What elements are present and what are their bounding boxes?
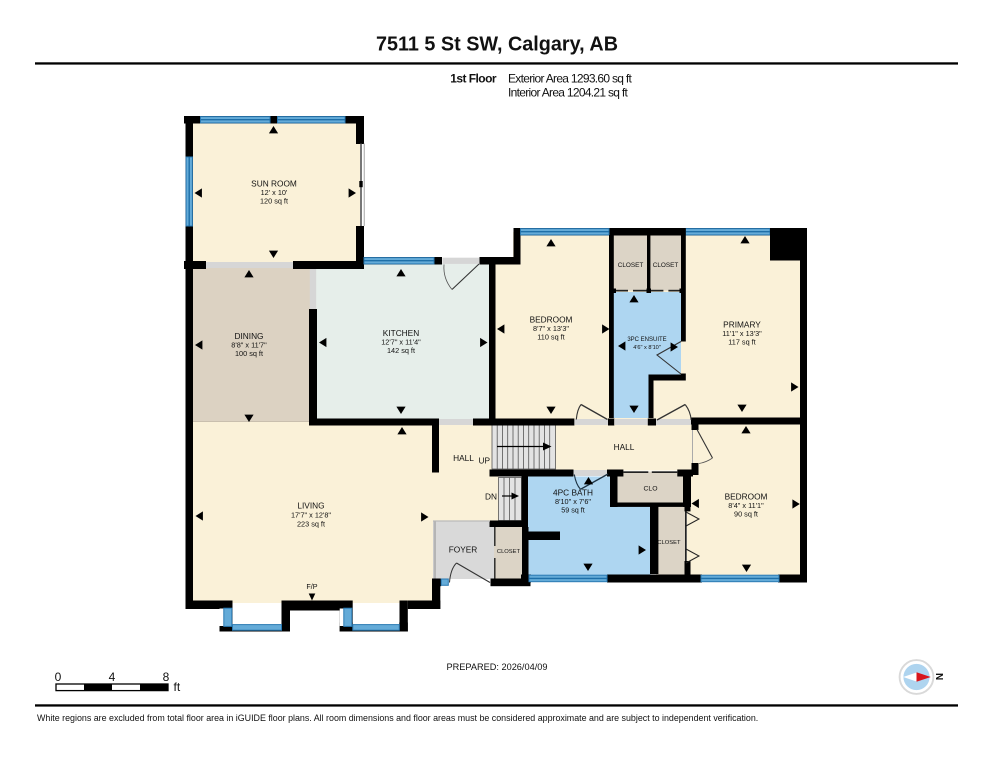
svg-text:4'6" x 8'10": 4'6" x 8'10": [633, 345, 661, 351]
svg-text:FOYER: FOYER: [449, 545, 478, 555]
svg-text:59 sq ft: 59 sq ft: [561, 506, 585, 515]
svg-text:DINING: DINING: [234, 331, 263, 341]
svg-text:0: 0: [55, 670, 62, 684]
svg-text:117 sq ft: 117 sq ft: [728, 338, 755, 347]
svg-text:Exterior Area 1293.60 sq ft: Exterior Area 1293.60 sq ft: [508, 72, 633, 86]
svg-text:CLO: CLO: [644, 486, 658, 493]
svg-text:HALL: HALL: [453, 453, 474, 463]
svg-text:CLOSET: CLOSET: [497, 549, 521, 555]
svg-text:100 sq ft: 100 sq ft: [235, 349, 263, 358]
svg-text:CLOSET: CLOSET: [618, 262, 644, 269]
svg-text:HALL: HALL: [614, 442, 635, 452]
svg-text:1st Floor: 1st Floor: [450, 72, 497, 86]
svg-text:PRIMARY: PRIMARY: [723, 320, 761, 330]
svg-text:8: 8: [163, 670, 170, 684]
svg-text:Interior Area 1204.21 sq ft: Interior Area 1204.21 sq ft: [508, 86, 629, 100]
svg-text:BEDROOM: BEDROOM: [725, 492, 768, 502]
svg-text:PREPARED: 2026/04/09: PREPARED: 2026/04/09: [447, 662, 548, 672]
svg-text:DN: DN: [485, 492, 497, 502]
svg-text:3PC ENSUITE: 3PC ENSUITE: [627, 337, 666, 343]
svg-text:UP: UP: [478, 456, 490, 466]
svg-text:F/P: F/P: [306, 582, 317, 591]
svg-text:CLOSET: CLOSET: [653, 262, 679, 269]
svg-text:7511 5 St SW, Calgary, AB: 7511 5 St SW, Calgary, AB: [376, 34, 618, 56]
svg-text:CLOSET: CLOSET: [657, 540, 681, 546]
svg-text:LIVING: LIVING: [297, 501, 324, 511]
svg-text:223 sq ft: 223 sq ft: [297, 520, 325, 529]
svg-text:90 sq ft: 90 sq ft: [734, 510, 758, 519]
svg-text:N: N: [933, 673, 944, 680]
svg-text:ft: ft: [174, 680, 181, 694]
svg-text:SUN ROOM: SUN ROOM: [251, 179, 297, 189]
svg-text:17'7" x 12'8": 17'7" x 12'8": [291, 511, 331, 520]
svg-text:White regions are excluded fro: White regions are excluded from total fl…: [37, 713, 758, 723]
svg-text:KITCHEN: KITCHEN: [383, 328, 419, 338]
svg-text:4PC BATH: 4PC BATH: [553, 488, 593, 498]
svg-text:BEDROOM: BEDROOM: [530, 315, 573, 325]
svg-text:110 sq ft: 110 sq ft: [537, 333, 564, 342]
svg-text:142 sq ft: 142 sq ft: [387, 346, 415, 355]
svg-text:120 sq ft: 120 sq ft: [260, 197, 288, 206]
svg-text:4: 4: [109, 670, 116, 684]
